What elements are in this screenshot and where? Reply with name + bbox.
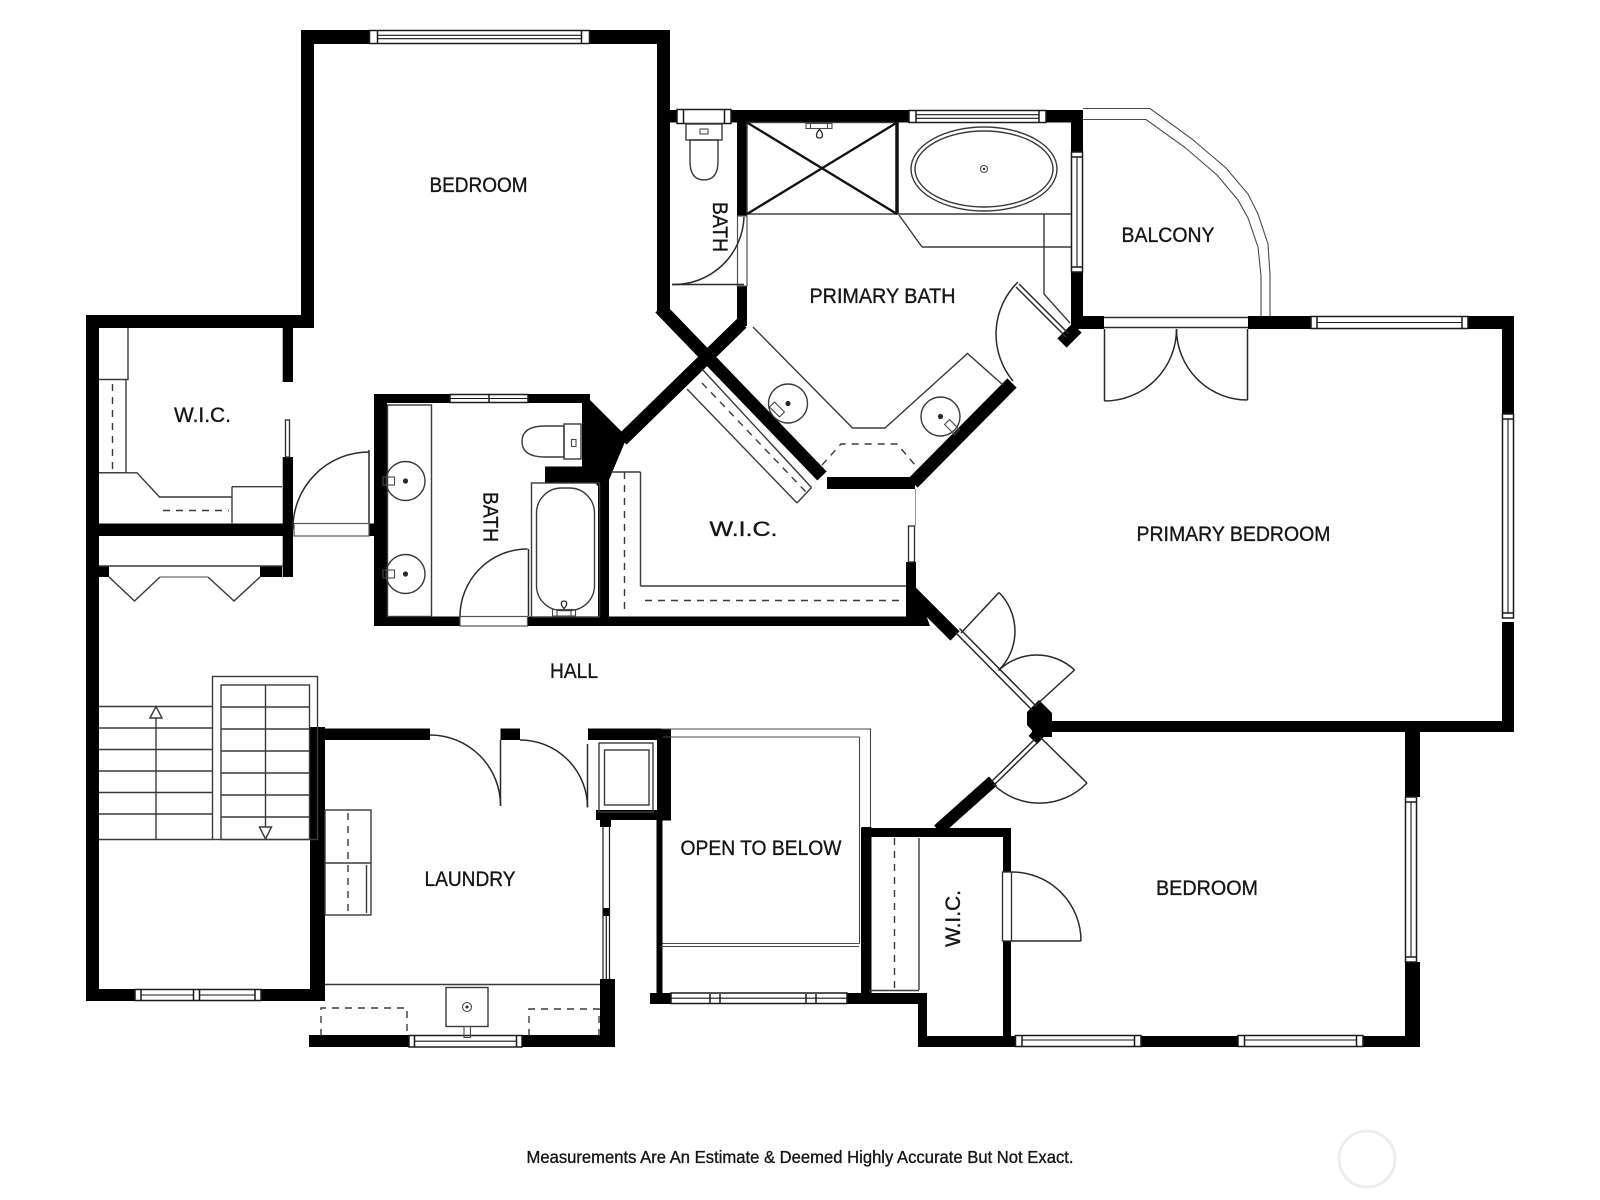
svg-text:LAUNDRY: LAUNDRY bbox=[425, 867, 516, 891]
svg-text:W.I.C.: W.I.C. bbox=[941, 890, 965, 947]
svg-text:Measurements Are An Estimate &: Measurements Are An Estimate & Deemed Hi… bbox=[527, 1147, 1074, 1167]
svg-text:W.I.C.: W.I.C. bbox=[710, 517, 778, 541]
svg-text:PRIMARY BATH: PRIMARY BATH bbox=[810, 284, 956, 308]
svg-text:BALCONY: BALCONY bbox=[1122, 223, 1215, 247]
svg-text:W.I.C.: W.I.C. bbox=[174, 403, 231, 427]
svg-text:PRIMARY BEDROOM: PRIMARY BEDROOM bbox=[1137, 522, 1331, 546]
svg-text:HALL: HALL bbox=[550, 659, 598, 683]
svg-text:BATH: BATH bbox=[479, 492, 503, 542]
svg-text:BATH: BATH bbox=[708, 202, 732, 252]
svg-text:BEDROOM: BEDROOM bbox=[1156, 876, 1258, 900]
svg-text:OPEN TO BELOW: OPEN TO BELOW bbox=[681, 836, 843, 860]
svg-text:BEDROOM: BEDROOM bbox=[430, 173, 528, 197]
